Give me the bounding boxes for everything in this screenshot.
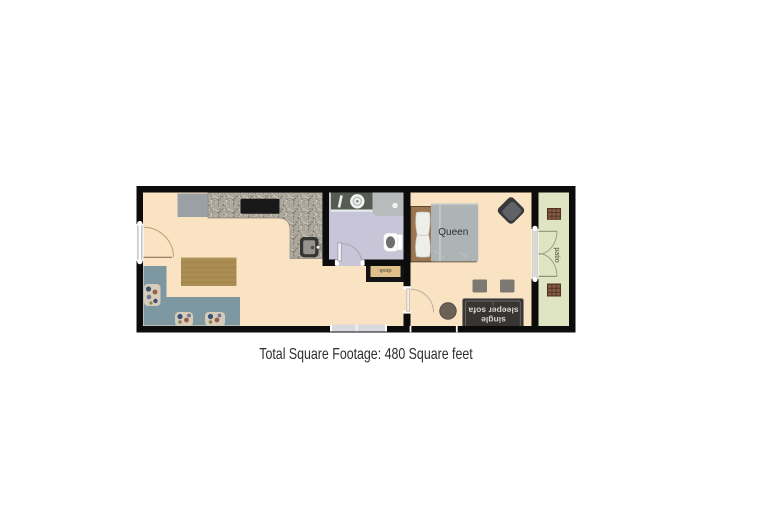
svg-text:Total Square Footage: 480 Squa: Total Square Footage: 480 Square feet bbox=[259, 344, 472, 362]
svg-text:single: single bbox=[481, 315, 506, 325]
svg-text:desk: desk bbox=[379, 267, 391, 273]
svg-text:sleeper sofa: sleeper sofa bbox=[468, 305, 518, 315]
svg-text:patio: patio bbox=[553, 247, 560, 262]
svg-text:Queen: Queen bbox=[438, 227, 468, 238]
